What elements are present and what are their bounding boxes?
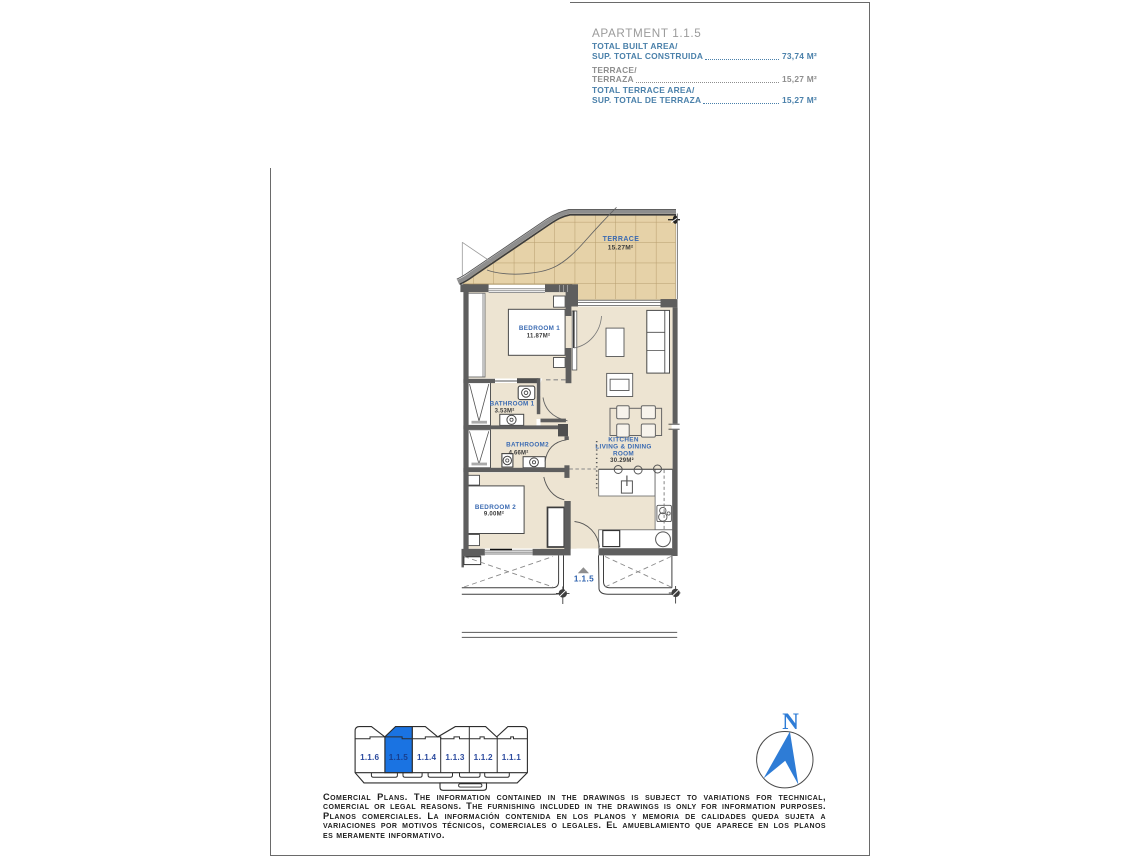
svg-text:1.1.3: 1.1.3 bbox=[445, 753, 464, 762]
svg-text:9.00M²: 9.00M² bbox=[484, 511, 504, 518]
svg-text:BATHROOM2: BATHROOM2 bbox=[506, 441, 549, 448]
svg-text:4.66M²: 4.66M² bbox=[509, 450, 529, 457]
svg-text:LIVING & DINING: LIVING & DINING bbox=[595, 443, 651, 450]
svg-text:3.53M²: 3.53M² bbox=[495, 407, 515, 414]
svg-text:1.1.2: 1.1.2 bbox=[474, 753, 493, 762]
svg-text:BATHROOM 1: BATHROOM 1 bbox=[490, 401, 535, 408]
svg-text:1.1.5: 1.1.5 bbox=[389, 753, 408, 762]
svg-text:BEDROOM 1: BEDROOM 1 bbox=[519, 325, 560, 332]
svg-text:1.1.4: 1.1.4 bbox=[417, 753, 436, 762]
svg-text:1.1.6: 1.1.6 bbox=[360, 753, 379, 762]
svg-text:15.27M²: 15.27M² bbox=[608, 244, 634, 251]
svg-text:KITCHEN: KITCHEN bbox=[608, 436, 639, 443]
svg-text:1.1.1: 1.1.1 bbox=[502, 753, 521, 762]
svg-text:30.29M²: 30.29M² bbox=[610, 457, 634, 464]
svg-text:ROOM: ROOM bbox=[613, 450, 634, 457]
svg-text:1.1.5: 1.1.5 bbox=[574, 574, 594, 583]
svg-text:N: N bbox=[782, 709, 799, 734]
svg-text:TERRACE: TERRACE bbox=[603, 236, 640, 243]
svg-text:11.87M²: 11.87M² bbox=[527, 332, 550, 339]
svg-text:BEDROOM 2: BEDROOM 2 bbox=[475, 504, 516, 511]
